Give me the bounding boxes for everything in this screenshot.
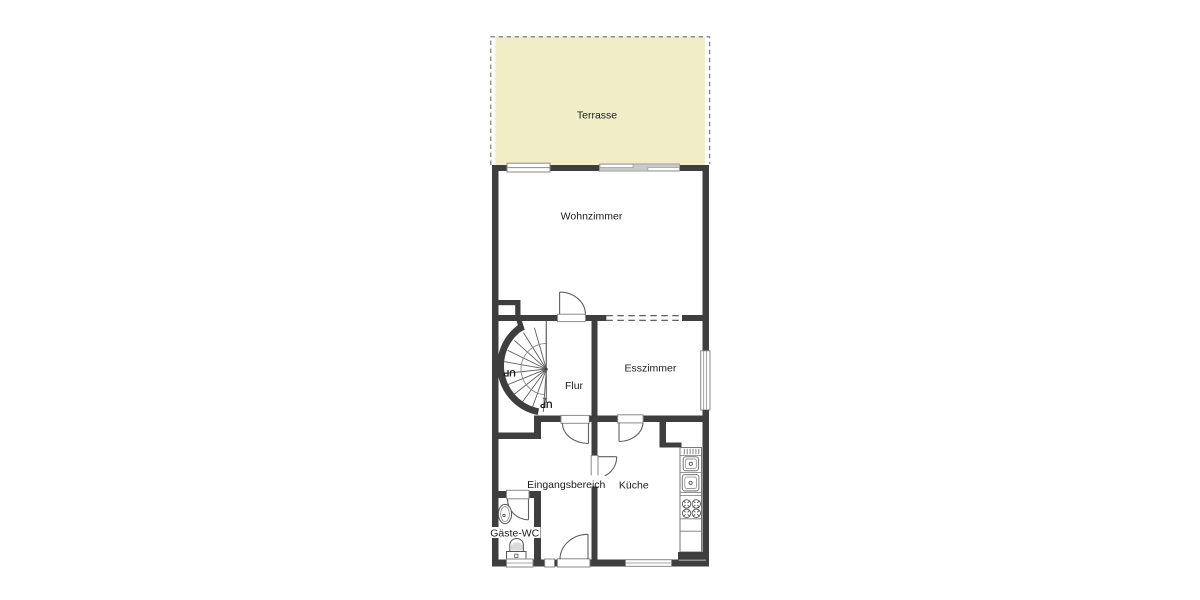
svg-text:Flur: Flur [565, 380, 584, 392]
svg-text:Küche: Küche [619, 480, 649, 492]
svg-text:Esszimmer: Esszimmer [624, 363, 676, 375]
svg-text:Gäste-WC: Gäste-WC [490, 528, 539, 540]
svg-text:UP: UP [540, 399, 553, 409]
svg-text:Wohnzimmer: Wohnzimmer [561, 211, 623, 223]
svg-text:Eingangsbereich: Eingangsbereich [527, 479, 605, 491]
svg-text:UP: UP [503, 368, 516, 378]
svg-text:Terrasse: Terrasse [577, 110, 617, 122]
